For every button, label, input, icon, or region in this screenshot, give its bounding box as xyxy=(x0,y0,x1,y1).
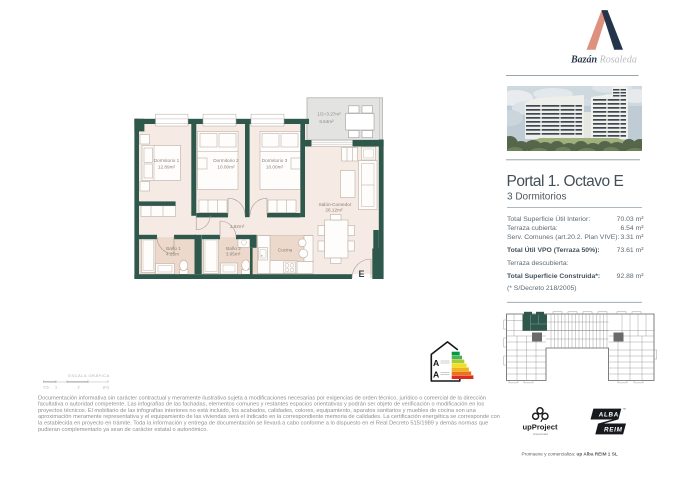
svg-text:1.82m²: 1.82m² xyxy=(230,224,245,229)
svg-text:70.03 m²: 70.03 m² xyxy=(617,216,645,223)
svg-text:Cocina: Cocina xyxy=(278,248,293,253)
svg-text:Total Útil VPO (Terraza 50%):: Total Útil VPO (Terraza 50%): xyxy=(507,245,600,254)
svg-text:3.95m²: 3.95m² xyxy=(226,252,241,257)
svg-text:(m): (m) xyxy=(103,386,109,390)
svg-text:A: A xyxy=(433,358,439,368)
svg-text:2: 2 xyxy=(77,386,79,390)
svg-text:REIM: REIM xyxy=(604,427,623,434)
svg-text:ALBA: ALBA xyxy=(598,412,619,419)
svg-text:6.54 m²: 6.54 m² xyxy=(620,225,644,232)
svg-text:10.00m²: 10.00m² xyxy=(217,165,235,170)
svg-text:Dormitorio 2: Dormitorio 2 xyxy=(213,158,239,163)
svg-text:Documentación informativa sin: Documentación informativa sin carácter c… xyxy=(38,395,486,401)
svg-text:pudieran complementarlo ya sea: pudieran complementarlo ya sean de carác… xyxy=(38,427,208,433)
svg-text:Terraza cubierta:: Terraza cubierta: xyxy=(507,225,558,232)
svg-text:Hispanidad: Hispanidad xyxy=(533,432,548,436)
svg-text:(* S/Decreto 218/2005): (* S/Decreto 218/2005) xyxy=(507,285,577,292)
svg-text:Baño 1: Baño 1 xyxy=(166,246,181,251)
svg-text:la establecida en proyecto en: la establecida en proyecto en trámite. T… xyxy=(38,421,488,427)
svg-text:aproximación meramente represe: aproximación meramente representativa y … xyxy=(38,414,500,420)
svg-text:3.31 m²: 3.31 m² xyxy=(620,234,644,241)
svg-text:Promueve y comercializa: up A: Promueve y comercializa: up Alba REIM 1 … xyxy=(522,451,618,456)
svg-text:A: A xyxy=(433,369,439,379)
svg-text:ESCALA GRÁFICA: ESCALA GRÁFICA xyxy=(68,373,109,378)
svg-text:Dormitorio 1: Dormitorio 1 xyxy=(154,158,180,163)
svg-text:12.89m²: 12.89m² xyxy=(158,165,176,170)
svg-text:1/2=3.27m²: 1/2=3.27m² xyxy=(317,112,341,117)
svg-text:upProject: upProject xyxy=(522,423,557,432)
svg-text:Total Superficie Útil Interior: Total Superficie Útil Interior: xyxy=(507,214,590,223)
svg-text:92.88 m²: 92.88 m² xyxy=(617,273,645,280)
svg-text:Salón-Comedor: Salón-Comedor xyxy=(319,202,352,207)
svg-text:facultativa o autoridad compet: facultativa o autoridad competente. Las … xyxy=(38,402,484,408)
svg-text:3 Dormitorios: 3 Dormitorios xyxy=(507,192,566,203)
svg-text:6.54m²: 6.54m² xyxy=(319,119,334,124)
svg-text:Serv. Comunes (art.20.2. Plan: Serv. Comunes (art.20.2. Plan VIVE): xyxy=(507,234,620,241)
svg-text:26.12m²: 26.12m² xyxy=(325,208,343,213)
svg-text:1: 1 xyxy=(55,386,57,390)
svg-text:Bazán Rosaleda: Bazán Rosaleda xyxy=(570,55,637,66)
svg-text:73.61 m²: 73.61 m² xyxy=(617,247,645,254)
svg-text:Portal 1. Octavo E: Portal 1. Octavo E xyxy=(507,173,624,190)
svg-text:4.25m: 4.25m xyxy=(166,252,179,257)
svg-text:Dormitorio 3: Dormitorio 3 xyxy=(262,158,288,163)
svg-text:10.00m²: 10.00m² xyxy=(266,165,284,170)
svg-text:Terraza descubierta:: Terraza descubierta: xyxy=(507,260,569,267)
svg-text:E: E xyxy=(358,269,364,279)
svg-text:Baño 2: Baño 2 xyxy=(226,246,241,251)
svg-text:Total Superficie Construida*:: Total Superficie Construida*: xyxy=(507,273,600,280)
svg-text:0.5: 0.5 xyxy=(43,386,48,390)
svg-text:proyectos técnicos. El mobilia: proyectos técnicos. El mobiliario de las… xyxy=(38,408,477,414)
svg-text:™: ™ xyxy=(623,407,626,411)
